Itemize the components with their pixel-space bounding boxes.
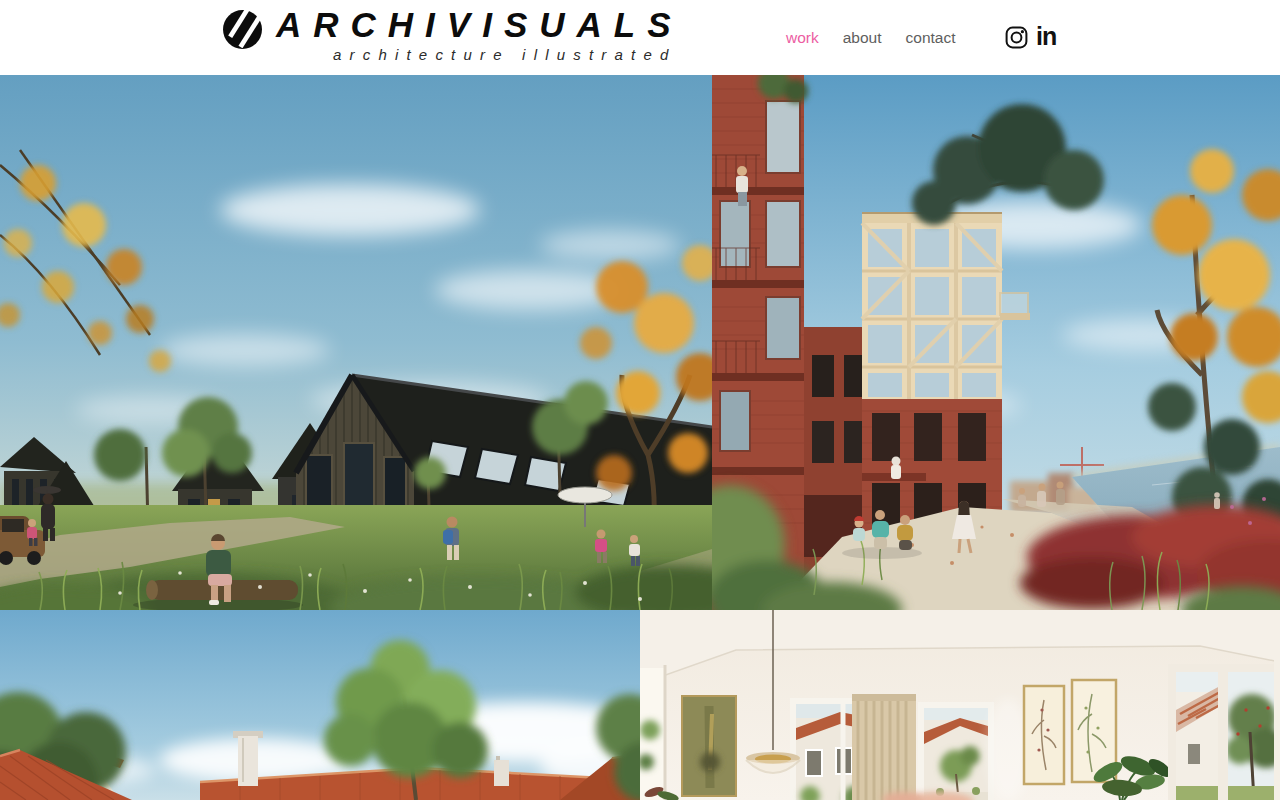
project-thumbnail-2[interactable]: [712, 75, 1280, 610]
project-thumbnail-4[interactable]: [640, 610, 1280, 800]
logo-text: ARCHIVISUALS architecture illustrated: [276, 7, 683, 63]
site-header: ARCHIVISUALS architecture illustrated wo…: [0, 0, 1280, 75]
archivisuals-homepage: ARCHIVISUALS architecture illustrated wo…: [0, 0, 1280, 800]
nav-item-work[interactable]: work: [786, 29, 819, 47]
project-thumbnail-3[interactable]: [0, 610, 640, 800]
brand-name: ARCHIVISUALS: [276, 7, 683, 44]
archivisuals-logo-icon: [222, 9, 263, 50]
gallery-row-bottom: [0, 610, 1280, 800]
work-gallery: [0, 75, 1280, 800]
instagram-icon[interactable]: [1005, 26, 1028, 49]
nav-item-contact[interactable]: contact: [906, 29, 956, 47]
social-links: in: [1005, 0, 1056, 75]
logo[interactable]: ARCHIVISUALS architecture illustrated: [222, 7, 683, 63]
project-thumbnail-1[interactable]: [0, 75, 712, 610]
render-rooftops-sky: [0, 610, 640, 800]
main-nav: work about contact: [786, 0, 956, 75]
brand-tagline: architecture illustrated: [276, 46, 677, 63]
linkedin-icon[interactable]: in: [1036, 24, 1056, 49]
render-living-room: [640, 610, 1280, 800]
nav-item-about[interactable]: about: [843, 29, 882, 47]
render-waterfront-towers: [712, 75, 1280, 610]
render-meadow-houses: [0, 75, 712, 610]
gallery-row-top: [0, 75, 1280, 610]
